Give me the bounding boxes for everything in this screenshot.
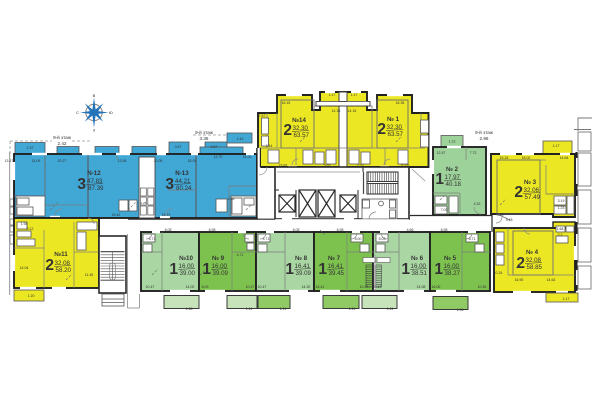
svg-text:7.67: 7.67: [259, 114, 266, 118]
svg-text:1: 1: [435, 171, 444, 188]
svg-text:6.98: 6.98: [337, 228, 344, 232]
svg-text:7.03: 7.03: [441, 208, 448, 212]
svg-text:14.00: 14.00: [243, 155, 252, 159]
svg-text:№ 2: № 2: [446, 166, 459, 173]
svg-text:5.65: 5.65: [324, 164, 331, 168]
svg-text:12.57: 12.57: [437, 151, 446, 155]
svg-text:16.41: 16.41: [316, 285, 325, 289]
svg-text:6.71: 6.71: [149, 237, 156, 241]
svg-text:9.48: 9.48: [506, 218, 513, 222]
svg-text:9-й этаж: 9-й этаж: [195, 129, 214, 135]
svg-text:6.09: 6.09: [202, 285, 209, 289]
svg-text:13.17: 13.17: [5, 159, 14, 163]
svg-text:2: 2: [514, 184, 523, 201]
svg-text:14.02: 14.02: [186, 285, 195, 289]
svg-text:10.47: 10.47: [146, 285, 155, 289]
svg-text:10.47: 10.47: [373, 285, 382, 289]
svg-text:1.25: 1.25: [141, 201, 147, 205]
svg-text:№ 1: № 1: [387, 116, 400, 123]
svg-text:16.00: 16.00: [432, 285, 441, 289]
svg-text:15.24: 15.24: [500, 156, 509, 160]
svg-text:16.90: 16.90: [515, 278, 524, 282]
svg-text:1.17: 1.17: [563, 297, 570, 301]
svg-text:4.55: 4.55: [228, 197, 235, 201]
svg-text:1.98: 1.98: [21, 222, 28, 226]
svg-text:7.44: 7.44: [266, 144, 273, 148]
svg-text:С: С: [76, 110, 79, 115]
svg-text:15.42: 15.42: [112, 213, 121, 217]
svg-text:2: 2: [377, 121, 386, 138]
svg-text:Ю: Ю: [109, 110, 113, 115]
svg-text:1.17: 1.17: [329, 93, 336, 97]
svg-text:9-й этаж: 9-й этаж: [475, 129, 494, 135]
svg-text:1.68: 1.68: [557, 227, 564, 231]
svg-text:№ 9: № 9: [212, 255, 225, 262]
svg-text:16.35: 16.35: [396, 101, 405, 105]
svg-text:4.66: 4.66: [407, 228, 414, 232]
svg-text:1.12: 1.12: [449, 140, 456, 144]
svg-text:1.17: 1.17: [351, 93, 358, 97]
svg-text:1.23: 1.23: [558, 206, 565, 210]
svg-text:10.05: 10.05: [154, 159, 163, 163]
svg-text:14.04: 14.04: [20, 266, 29, 270]
svg-text:6.98: 6.98: [209, 228, 216, 232]
svg-text:10.65: 10.65: [401, 164, 410, 168]
svg-text:39.09: 39.09: [296, 270, 312, 277]
svg-text:18.02: 18.02: [522, 156, 531, 160]
svg-text:14.15: 14.15: [348, 109, 357, 113]
svg-text:№ 6: № 6: [411, 255, 424, 262]
svg-text:3.40: 3.40: [497, 213, 504, 217]
svg-text:40.18: 40.18: [446, 181, 462, 188]
svg-text:№ 8: № 8: [295, 255, 308, 262]
svg-text:10.47: 10.47: [360, 285, 369, 289]
svg-text:1.20: 1.20: [28, 294, 35, 298]
svg-text:№10: №10: [179, 255, 193, 262]
svg-text:58.85: 58.85: [527, 264, 543, 271]
svg-text:№ 7: № 7: [328, 255, 341, 262]
svg-text:18.49: 18.49: [162, 213, 171, 217]
svg-text:N-13: N-13: [175, 170, 189, 177]
svg-text:2: 2: [45, 257, 54, 274]
svg-text:80.24: 80.24: [176, 185, 192, 192]
svg-text:1: 1: [401, 261, 410, 278]
svg-text:4.71: 4.71: [263, 237, 270, 241]
svg-text:3: 3: [77, 176, 86, 193]
svg-text:1.11: 1.11: [387, 307, 394, 311]
svg-text:1.37: 1.37: [27, 146, 34, 150]
svg-text:38.51: 38.51: [412, 270, 428, 277]
svg-text:18.09: 18.09: [188, 159, 197, 163]
svg-text:63.57: 63.57: [294, 132, 310, 139]
svg-text:15.82: 15.82: [279, 164, 288, 168]
svg-text:2: 2: [283, 122, 292, 139]
svg-text:5.03: 5.03: [379, 237, 386, 241]
svg-text:1: 1: [169, 261, 178, 278]
svg-text:1: 1: [434, 261, 443, 278]
svg-text:1.38: 1.38: [186, 307, 193, 311]
svg-text:6.98: 6.98: [441, 228, 448, 232]
svg-text:0.57: 0.57: [211, 145, 218, 149]
svg-text:1.42: 1.42: [237, 137, 244, 141]
svg-text:2.42: 2.42: [58, 141, 67, 146]
svg-text:4.32: 4.32: [474, 202, 481, 206]
svg-text:14.35: 14.35: [332, 109, 341, 113]
svg-text:2.2: 2.2: [558, 233, 563, 237]
svg-text:1.11: 1.11: [280, 307, 287, 311]
svg-text:№11: №11: [54, 251, 68, 258]
svg-text:39.45: 39.45: [329, 270, 345, 277]
svg-text:1: 1: [285, 261, 294, 278]
svg-text:14.20: 14.20: [302, 285, 311, 289]
svg-text:1.11: 1.11: [349, 307, 356, 311]
svg-text:№ 5: № 5: [444, 255, 457, 262]
svg-text:1.11: 1.11: [246, 307, 253, 311]
svg-text:0.57: 0.57: [175, 145, 182, 149]
svg-text:57.49: 57.49: [525, 194, 541, 201]
svg-text:10.45: 10.45: [478, 285, 487, 289]
svg-text:№ 3: № 3: [524, 179, 537, 186]
svg-text:7.72: 7.72: [470, 151, 477, 155]
svg-text:6.71: 6.71: [469, 237, 476, 241]
svg-text:№ 4: № 4: [526, 249, 539, 256]
svg-text:4.71: 4.71: [237, 253, 244, 257]
svg-text:3.36: 3.36: [200, 136, 209, 141]
svg-text:5.00: 5.00: [355, 237, 362, 241]
svg-text:13.06: 13.06: [118, 159, 127, 163]
svg-text:39.00: 39.00: [180, 270, 196, 277]
svg-text:11.45: 11.45: [85, 273, 94, 277]
svg-text:39.09: 39.09: [213, 270, 229, 277]
svg-text:87.39: 87.39: [88, 185, 104, 192]
svg-text:6.08: 6.08: [293, 228, 300, 232]
svg-text:N-12: N-12: [87, 170, 101, 177]
svg-text:2.53: 2.53: [357, 164, 364, 168]
svg-text:58.20: 58.20: [56, 267, 72, 274]
svg-text:10.47: 10.47: [246, 285, 255, 289]
svg-text:14.64: 14.64: [547, 278, 556, 282]
svg-text:В: В: [93, 93, 96, 98]
svg-text:10.47: 10.47: [258, 285, 267, 289]
svg-text:1: 1: [318, 261, 327, 278]
svg-text:6.08: 6.08: [165, 228, 172, 232]
svg-text:16.15: 16.15: [282, 101, 291, 105]
svg-text:1: 1: [202, 261, 211, 278]
svg-text:2.96: 2.96: [480, 136, 489, 141]
svg-text:3.19: 3.19: [558, 199, 565, 203]
svg-text:38.27: 38.27: [445, 270, 461, 277]
svg-text:1.36: 1.36: [457, 308, 464, 312]
svg-text:63.57: 63.57: [388, 131, 404, 138]
svg-text:20.27: 20.27: [58, 159, 67, 163]
svg-text:14.08: 14.08: [417, 285, 426, 289]
svg-text:3: 3: [165, 176, 174, 193]
svg-text:14.64: 14.64: [560, 156, 569, 160]
svg-text:№14: №14: [292, 117, 306, 124]
svg-text:14.09: 14.09: [32, 159, 41, 163]
svg-text:12.70: 12.70: [214, 155, 223, 159]
svg-text:2.12: 2.12: [27, 227, 34, 231]
svg-text:1.17: 1.17: [553, 144, 560, 148]
svg-text:9-й этаж: 9-й этаж: [53, 134, 72, 140]
svg-text:10.24: 10.24: [494, 271, 503, 275]
